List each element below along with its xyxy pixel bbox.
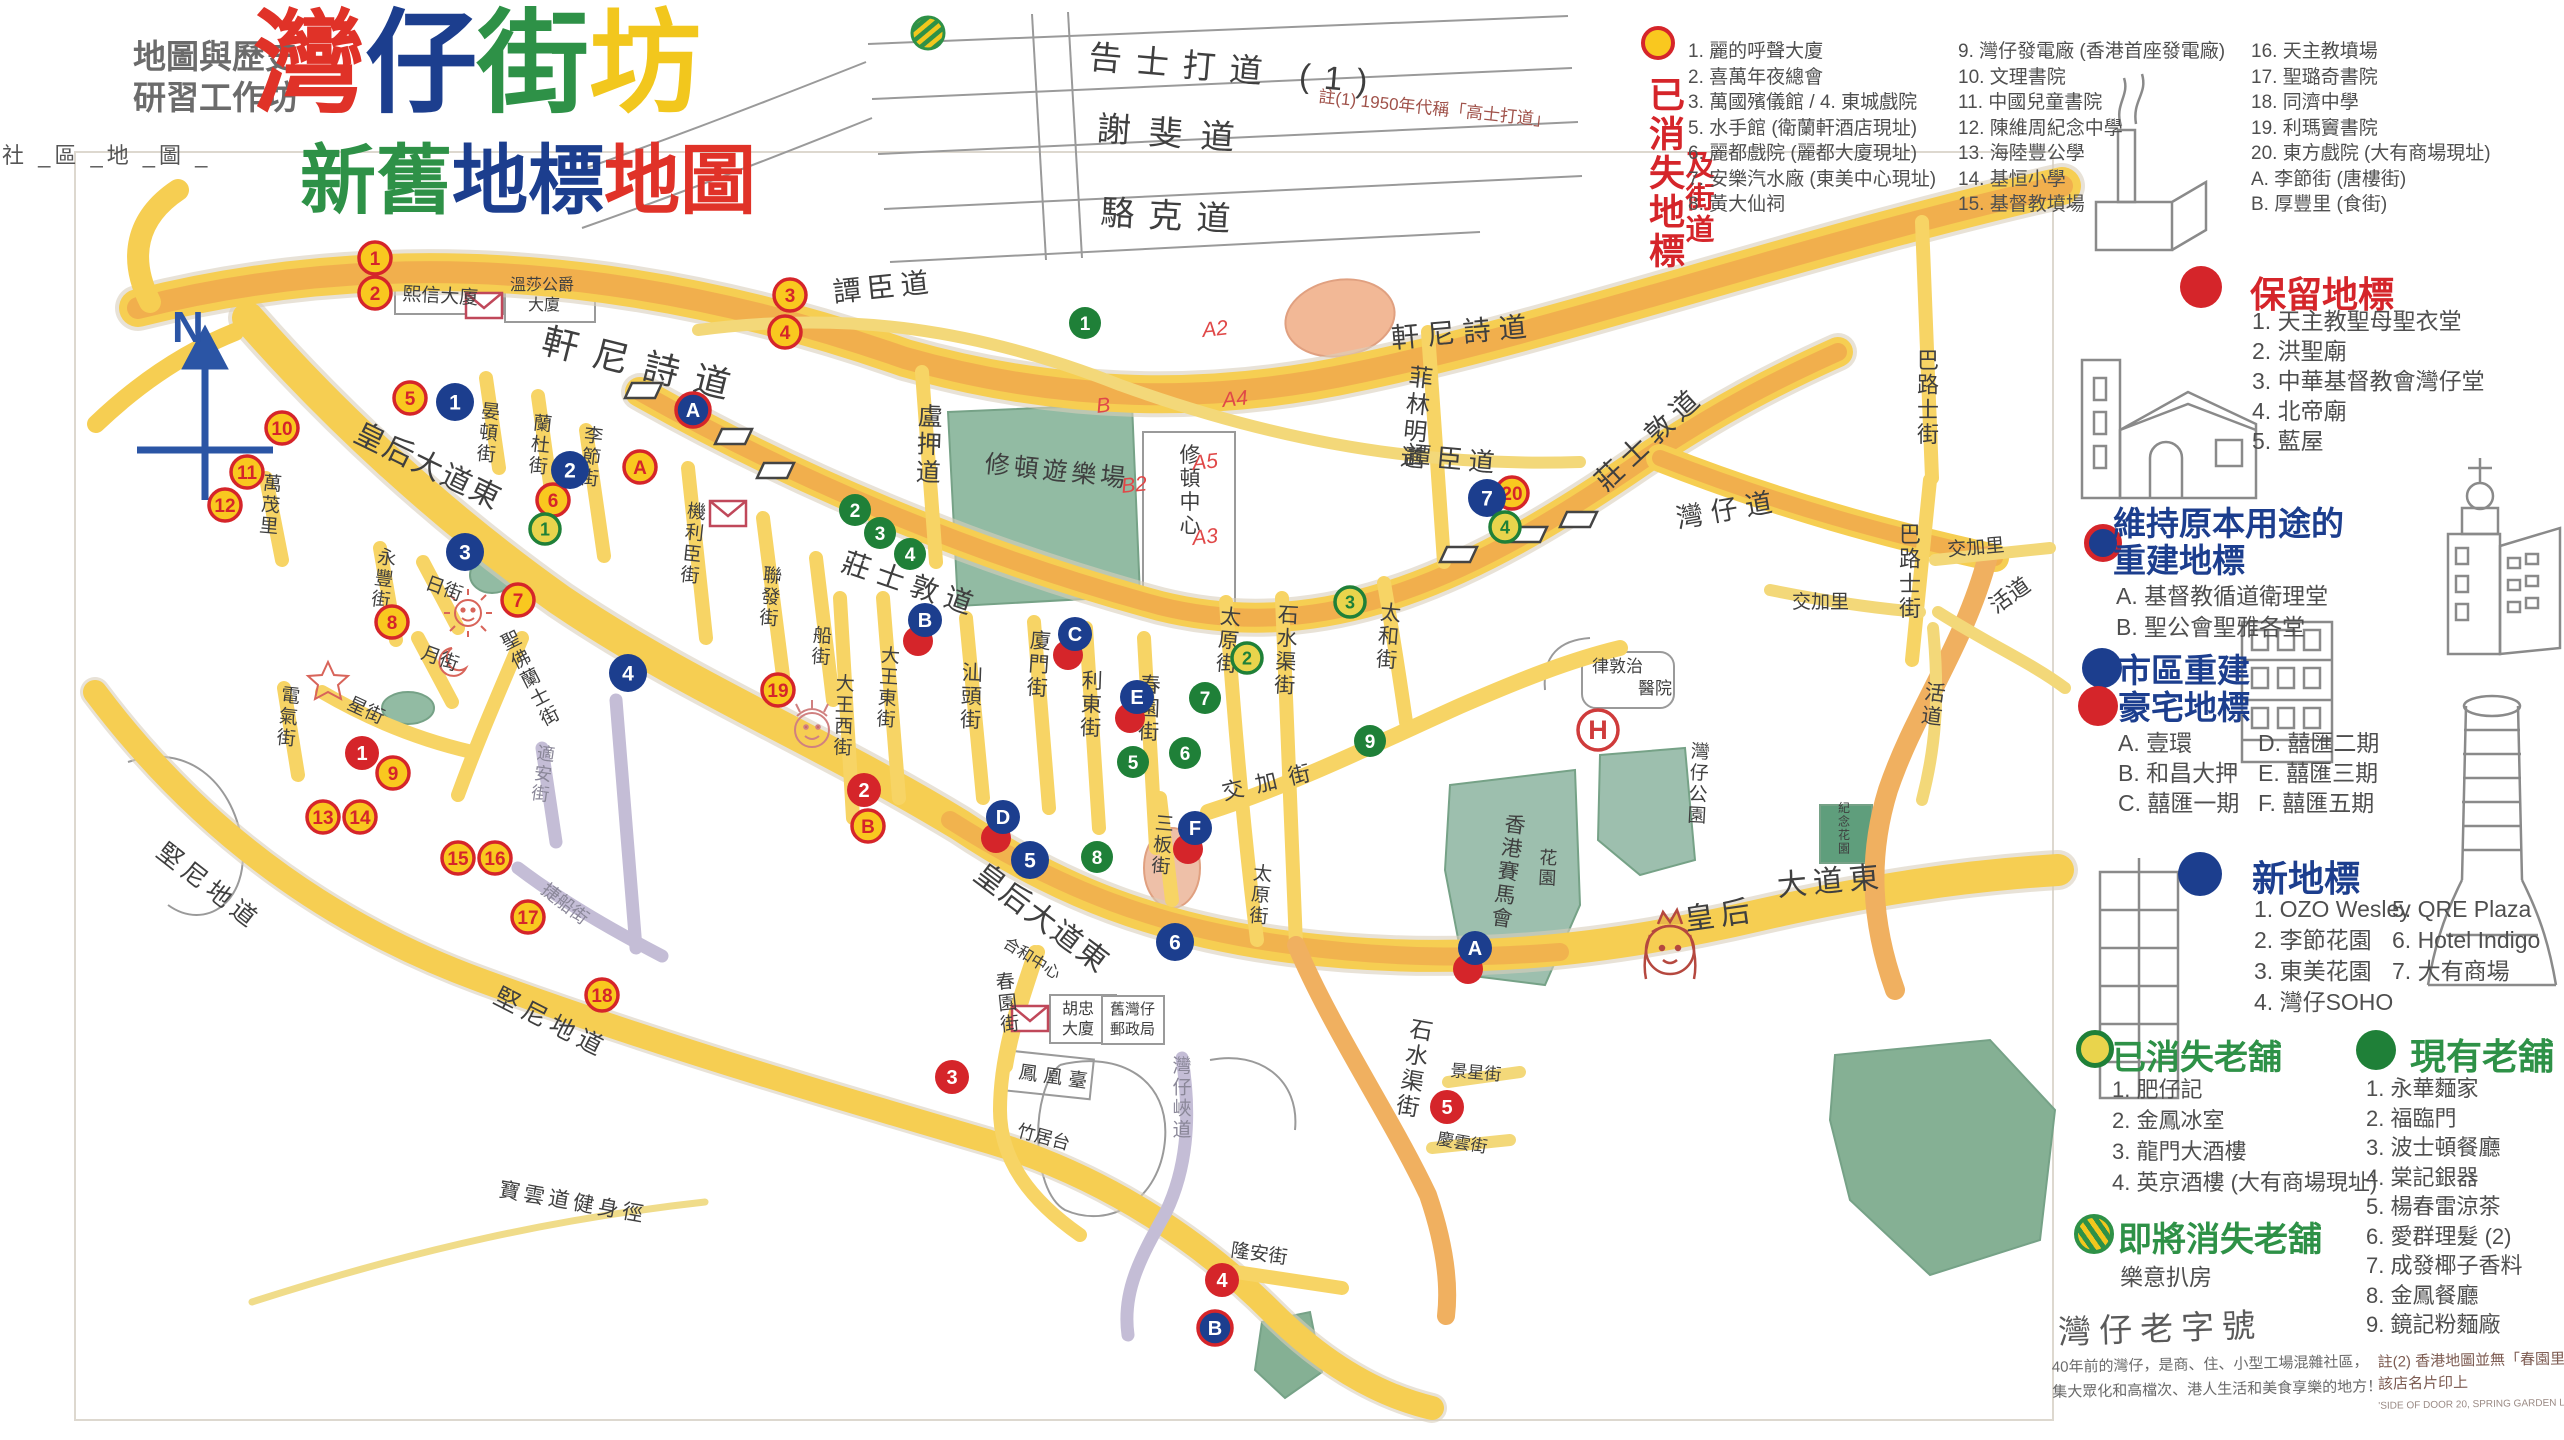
gone-shops-legend-title: 已消失老舖 — [2112, 1030, 2282, 1079]
marker-lost-17: 17 — [512, 901, 544, 933]
svg-text:1: 1 — [540, 519, 550, 539]
legend-item: E. 囍匯三期 — [2258, 758, 2379, 788]
svg-text:2: 2 — [1242, 648, 1252, 668]
title-char: 坊 — [589, 1, 701, 126]
svg-text:N: N — [172, 303, 204, 352]
gone-shops-list: 1. 肥仔記2. 金鳳冰室3. 龍門大酒樓4. 英京酒樓 (大有商場現址) — [2112, 1074, 2377, 1198]
marker-rebuilt-A: A — [676, 393, 710, 427]
marker-lost-A: A — [624, 451, 656, 483]
title-char: 街 — [477, 1, 589, 126]
existing-shops-legend-icon — [2356, 1030, 2396, 1070]
wanchai-map-poster: N — [0, 0, 2564, 1435]
spring-garden-note: 註(2) 香港地圖並無「春園里」, 該店名片印上 'SIDE OF DOOR 2… — [2377, 1348, 2564, 1418]
legend-item: 6. 麗都戲院 (麗都大廈現址) — [1688, 141, 1936, 167]
svg-text:7: 7 — [1481, 488, 1493, 511]
route-mark: A2 — [1199, 316, 1229, 342]
marker-lost-15: 15 — [442, 842, 474, 874]
marker-shopgone-4: 4 — [1490, 512, 1520, 542]
title-char: 標 — [528, 139, 604, 224]
legend-item: 8. 黃大仙祠 — [1688, 192, 1936, 218]
title-char: 圖 — [680, 139, 756, 224]
kept-legend-icon — [2180, 266, 2222, 308]
route-mark: A3 — [1189, 524, 1219, 550]
legend-item: 7. 成發椰子香料 — [2366, 1251, 2522, 1281]
marker-shop-7: 7 — [1189, 682, 1221, 714]
marker-rebuilt-B: B — [1198, 1311, 1232, 1345]
svg-text:6: 6 — [1169, 932, 1181, 955]
legend-item: 4. 灣仔SOHO — [2254, 987, 2411, 1018]
wanchai-park-area — [1598, 748, 1695, 875]
title-char: 新 — [300, 139, 376, 224]
legend-item: 6. Hotel Indigo — [2392, 925, 2540, 956]
legend-item: 12. 陳維周紀念中學 — [1958, 116, 2225, 142]
svg-text:6: 6 — [1180, 744, 1191, 765]
legend-item: C. 囍匯一期 — [2118, 788, 2239, 818]
svg-text:16: 16 — [484, 849, 505, 870]
street-label: 花園 — [1538, 848, 1558, 889]
street-label: 駱克道 — [1100, 194, 1246, 239]
closing-shops-legend-title: 即將消失老舖 — [2118, 1212, 2322, 1261]
marker-lost-3: 3 — [774, 279, 806, 311]
marker-new-5: 5 — [1011, 841, 1049, 879]
marker-luxury-F: F — [1173, 811, 1212, 864]
svg-text:C: C — [1068, 624, 1082, 646]
legend-item: 1. 麗的呼聲大廈 — [1688, 39, 1936, 65]
marker-lost-5: 5 — [394, 382, 426, 414]
marker-lost-11: 11 — [231, 456, 263, 488]
svg-text:3: 3 — [875, 524, 886, 545]
svg-text:11: 11 — [237, 463, 258, 484]
marker-shop-2: 2 — [839, 494, 871, 526]
svg-text:B: B — [918, 610, 932, 632]
svg-text:13: 13 — [312, 808, 333, 829]
kept-church-sketch — [2082, 360, 2256, 498]
street-label: 大廈 — [1062, 1020, 1094, 1038]
svg-text:1: 1 — [356, 743, 367, 765]
lost-list-col3: 16. 天主教墳場17. 聖璐奇書院18. 同濟中學19. 利瑪竇書院20. 東… — [2251, 39, 2491, 218]
poster-subtitle: 新舊地標地圖 — [300, 142, 756, 222]
stone-nullah-lane — [1296, 945, 1447, 1316]
legend-item: B. 聖公會聖雅各堂 — [2116, 612, 2328, 643]
existing-shops-legend-title: 現有老舖 — [2410, 1028, 2554, 1080]
svg-text:6: 6 — [548, 491, 559, 512]
svg-text:4: 4 — [1216, 1270, 1228, 1292]
marker-lost-1: 1 — [359, 242, 391, 274]
title-char: 地 — [604, 139, 680, 224]
street-label: 熙信大廈 — [402, 283, 479, 309]
street-label: 利東街 — [1080, 670, 1103, 741]
legend-item: D. 囍匯二期 — [2258, 728, 2379, 758]
closing-shops-legend-icon — [2074, 1214, 2114, 1254]
marker-closing-x — [912, 17, 944, 49]
legend-item: 1. 永華麵家 — [2366, 1074, 2522, 1104]
title-char: 地 — [452, 139, 528, 224]
svg-text:8: 8 — [387, 613, 398, 634]
svg-text:A: A — [1468, 938, 1482, 960]
marker-new-4: 4 — [609, 654, 647, 692]
legend-item: 19. 利瑪竇書院 — [2251, 116, 2491, 142]
side-edge-label: 社 _區 _地 _圖 _ — [2, 138, 211, 170]
legend-item: 9. 鏡記粉麵廠 — [2366, 1310, 2522, 1340]
marker-lost-13: 13 — [307, 801, 339, 833]
street-label: 盧押道 — [915, 403, 943, 488]
route-mark: A5 — [1189, 449, 1219, 475]
svg-text:A: A — [686, 400, 700, 422]
rebuilt-legend-list: A. 基督教循道衛理堂B. 聖公會聖雅各堂 — [2116, 581, 2328, 643]
rebuilt-legend-title: 維持原本用途的 重建地標 — [2113, 505, 2344, 579]
legend-item: 3. 中華基督教會灣仔堂 — [2252, 366, 2485, 396]
legend-item: 2. 福臨門 — [2366, 1104, 2522, 1134]
existing-shops-list: 1. 永華麵家2. 福臨門3. 波士頓餐廳4. 棠記銀器5. 楊春雷涼茶6. 愛… — [2366, 1074, 2522, 1340]
route-mark: B — [1095, 394, 1111, 418]
street-label: 溫莎公爵 — [510, 276, 574, 294]
route-mark: A4 — [1219, 386, 1249, 412]
marker-shop-1: 1 — [1069, 307, 1101, 339]
street-label: 大廈 — [528, 296, 560, 314]
legend-item: 2. 喜萬年夜總會 — [1688, 65, 1936, 91]
street-label: 交加里 — [1792, 591, 1849, 613]
svg-text:5: 5 — [1128, 753, 1139, 774]
gone-shops-legend-icon — [2076, 1030, 2114, 1068]
kept-legend-list: 1. 天主教聖母聖衣堂2. 洪聖廟3. 中華基督教會灣仔堂4. 北帝廟5. 藍屋 — [2252, 306, 2485, 456]
legend-item: A. 壹環 — [2118, 728, 2239, 758]
svg-text:14: 14 — [349, 808, 371, 829]
marker-kept-4: 4 — [1205, 1263, 1239, 1297]
lost-legend-icon — [1641, 26, 1675, 60]
svg-text:8: 8 — [1092, 848, 1103, 869]
marker-kept-5: 5 — [1430, 1090, 1464, 1124]
marker-lost-18: 18 — [586, 979, 618, 1011]
luxury-legend-icon-blue — [2082, 648, 2122, 688]
marker-lost-2: 2 — [359, 277, 391, 309]
street-label: 廈門街 — [1026, 629, 1052, 700]
legend-item: 18. 同濟中學 — [2251, 90, 2491, 116]
legend-item: 2. 洪聖廟 — [2252, 336, 2485, 366]
legend-item: 3. 龍門大酒樓 — [2112, 1136, 2377, 1167]
marker-lost-9: 9 — [377, 757, 409, 789]
marker-shopgone-2: 2 — [1232, 643, 1262, 673]
luxury-legend-icon-red — [2078, 686, 2118, 726]
street-label: 汕頭街 — [960, 662, 983, 733]
svg-text:2: 2 — [370, 284, 381, 305]
svg-text:12: 12 — [214, 496, 235, 517]
street-label: 巴路士街 — [1917, 348, 1939, 447]
legend-item: 15. 基督教墳場 — [1958, 192, 2225, 218]
svg-text:9: 9 — [388, 764, 399, 785]
marker-lost-6: 6 — [537, 484, 569, 516]
svg-text:3: 3 — [1345, 592, 1355, 612]
svg-text:2: 2 — [858, 780, 869, 802]
svg-text:18: 18 — [591, 986, 612, 1007]
marker-lost-7: 7 — [502, 584, 534, 616]
marker-shop-4: 4 — [894, 538, 926, 570]
svg-text:5: 5 — [1441, 1097, 1452, 1119]
legend-item: 4. 棠記銀器 — [2366, 1163, 2522, 1193]
legend-item: 4. 北帝廟 — [2252, 396, 2485, 426]
legend-item: 6. 愛群理髮 (2) — [2366, 1222, 2522, 1252]
svg-text:19: 19 — [767, 681, 788, 702]
new-landmark-legend-icon — [2178, 852, 2222, 896]
legend-item: 5. QRE Plaza — [2392, 894, 2540, 925]
street-label: 船街 — [811, 624, 833, 669]
svg-text:5: 5 — [1024, 850, 1036, 873]
marker-lost-4: 4 — [769, 316, 801, 348]
svg-text:B: B — [861, 817, 875, 838]
marker-new-1: 1 — [436, 383, 474, 421]
street-label: 大王西街 — [833, 673, 855, 759]
legend-item: 7. 大有商場 — [2392, 956, 2540, 987]
legend-item: 1. 肥仔記 — [2112, 1074, 2377, 1105]
marker-shop-6: 6 — [1169, 737, 1201, 769]
street-note: 註(1) 1950年代稱「高士打道」 — [1318, 87, 1552, 130]
street-label: 捷船街 — [538, 879, 593, 928]
envelope-icon — [710, 501, 746, 526]
svg-text:3: 3 — [785, 286, 796, 307]
legend-item: 8. 金鳳餐廳 — [2366, 1281, 2522, 1311]
svg-text:4: 4 — [1500, 517, 1510, 537]
legend-item: 5. 楊春雷涼茶 — [2366, 1192, 2522, 1222]
rebuilt-church-tower-sketch — [2448, 458, 2560, 654]
svg-text:2: 2 — [564, 460, 576, 483]
roads — [95, 186, 2065, 1408]
svg-text:A: A — [633, 458, 647, 479]
svg-text:1: 1 — [370, 249, 381, 270]
svg-text:1: 1 — [449, 392, 461, 415]
svg-text:D: D — [996, 807, 1010, 829]
luxury-legend-title: 市區重建 豪宅地標 — [2118, 652, 2250, 726]
old-brands-note: 40年前的灣仔，是商、住、小型工場混雜社區， 集大眾化和高檔次、港人生活和美食享… — [2052, 1349, 2383, 1405]
marker-lost-B: B — [852, 810, 884, 842]
marker-lost-14: 14 — [344, 801, 376, 833]
marker-kept-3: 3 — [935, 1060, 969, 1094]
marker-lost-16: 16 — [479, 842, 511, 874]
marker-shop-5: 5 — [1117, 746, 1149, 778]
street-label: 巴路士街 — [1899, 522, 1921, 621]
legend-item: 4. 英京酒樓 (大有商場現址) — [2112, 1167, 2377, 1198]
street-label: 灣仔公園 — [1687, 741, 1710, 828]
svg-text:E: E — [1130, 687, 1143, 709]
legend-item: F. 囍匯五期 — [2258, 788, 2379, 818]
svg-text:B: B — [1208, 1318, 1222, 1340]
legend-item: 16. 天主教墳場 — [2251, 39, 2491, 65]
legend-item: 3. 波士頓餐廳 — [2366, 1133, 2522, 1163]
street-label: 春園街 — [995, 970, 1021, 1036]
street-label: 律敦治 — [1592, 657, 1643, 676]
lost-list-col1: 1. 麗的呼聲大廈2. 喜萬年夜總會3. 萬國殯儀館 / 4. 東城戲院5. 水… — [1688, 39, 1936, 218]
svg-text:4: 4 — [905, 545, 916, 566]
title-char: 灣 — [253, 1, 365, 126]
legend-item: 20. 東方戲院 (大有商場現址) — [2251, 141, 2491, 167]
street-label: 灣仔峽道 — [1172, 1055, 1191, 1141]
legend-item: 7. 安樂汽水廠 (東美中心現址) — [1688, 167, 1936, 193]
street-label: 舊灣仔 — [1110, 1001, 1155, 1018]
legend-item: 13. 海陸豐公學 — [1958, 141, 2225, 167]
poster-title: 灣仔街坊 — [253, 8, 701, 120]
marker-new-6: 6 — [1156, 923, 1194, 961]
svg-text:17: 17 — [517, 908, 538, 929]
svg-text:9: 9 — [1365, 732, 1376, 753]
legend-item: 11. 中國兒童書院 — [1958, 90, 2225, 116]
street-label: 郵政局 — [1110, 1021, 1155, 1038]
marker-shop-9: 9 — [1354, 725, 1386, 757]
closing-shops-list: 樂意扒房 — [2120, 1258, 2212, 1292]
svg-text:2: 2 — [850, 501, 861, 522]
legend-item: 3. 萬國殯儀館 / 4. 東城戲院 — [1688, 90, 1936, 116]
svg-text:5: 5 — [405, 389, 416, 410]
svg-text:7: 7 — [513, 591, 524, 612]
route-mark: B2 — [1120, 472, 1148, 498]
legend-item: 2. 金鳳冰室 — [2112, 1105, 2377, 1136]
legend-item: B. 厚豐里 (食街) — [2251, 192, 2491, 218]
title-char: 舊 — [376, 139, 452, 224]
svg-text:4: 4 — [780, 323, 791, 344]
legend-item: B. 和昌大押 — [2118, 758, 2239, 788]
title-char: 仔 — [365, 1, 477, 126]
marker-kept-2: 2 — [847, 773, 881, 807]
legend-item: 17. 聖璐奇書院 — [2251, 65, 2491, 91]
svg-text:3: 3 — [946, 1067, 957, 1089]
luxury-legend-col2: D. 囍匯二期E. 囍匯三期F. 囍匯五期 — [2258, 728, 2379, 818]
street-label: 石水渠街 — [1394, 1015, 1435, 1121]
street-label: 石水渠街 — [1274, 603, 1300, 698]
svg-text:H: H — [1588, 715, 1608, 745]
legend-item: 10. 文理書院 — [1958, 65, 2225, 91]
street-label: 醫院 — [1638, 679, 1672, 698]
new-landmark-col2: 5. QRE Plaza6. Hotel Indigo7. 大有商場 — [2392, 894, 2540, 987]
marker-shop-3: 3 — [864, 517, 896, 549]
street-label: 紀念花園 — [1838, 801, 1850, 855]
marker-shopgone-1: 1 — [530, 514, 560, 544]
svg-text:3: 3 — [459, 542, 471, 565]
marker-shopgone-3: 3 — [1335, 587, 1365, 617]
marker-lost-19: 19 — [762, 674, 794, 706]
legend-item: 9. 灣仔發電廠 (香港首座發電廠) — [1958, 39, 2225, 65]
svg-text:10: 10 — [271, 419, 292, 440]
legend-item: 14. 基恒小學 — [1958, 167, 2225, 193]
legend-item: 2. 李節花園 — [2254, 925, 2411, 956]
svg-text:F: F — [1189, 818, 1201, 840]
street-label: 活道 — [1985, 572, 2035, 618]
svg-text:4: 4 — [622, 663, 634, 686]
marker-lost-12: 12 — [209, 489, 241, 521]
svg-text:7: 7 — [1200, 689, 1211, 710]
old-brands-title: 灣仔老字號 — [2057, 1298, 2264, 1353]
hospital-icon: H — [1578, 710, 1618, 750]
marker-luxury-B: B — [903, 603, 942, 656]
street-label: 譚臣道 — [831, 266, 936, 307]
legend-item: A. 李節街 (唐樓街) — [2251, 167, 2491, 193]
legend-item: A. 基督教循道衛理堂 — [2116, 581, 2328, 612]
marker-lost-8: 8 — [376, 606, 408, 638]
luxury-legend-col1: A. 壹環B. 和昌大押C. 囍匯一期 — [2118, 728, 2239, 818]
marker-lost-10: 10 — [266, 412, 298, 444]
marker-kept-1: 1 — [345, 736, 379, 770]
svg-text:15: 15 — [447, 849, 469, 870]
legend-item: 3. 東美花園 — [2254, 956, 2411, 987]
legend-item: 1. OZO Wesley — [2254, 894, 2411, 925]
svg-text:1: 1 — [1080, 314, 1091, 335]
marker-shop-8: 8 — [1081, 841, 1113, 873]
legend-item: 5. 水手館 (衛蘭軒酒店現址) — [1688, 116, 1936, 142]
street-label: 胡忠 — [1062, 1000, 1094, 1018]
lost-list-col2: 9. 灣仔發電廠 (香港首座發電廠)10. 文理書院11. 中國兒童書院12. … — [1958, 39, 2225, 218]
new-landmark-col1: 1. OZO Wesley2. 李節花園3. 東美花園4. 灣仔SOHO — [2254, 894, 2411, 1018]
legend-item: 1. 天主教聖母聖衣堂 — [2252, 306, 2485, 336]
legend-item: 5. 藍屋 — [2252, 426, 2485, 456]
marker-new-3: 3 — [446, 533, 484, 571]
marker-new-2: 2 — [551, 451, 589, 489]
legend-item: 樂意扒房 — [2120, 1258, 2212, 1292]
